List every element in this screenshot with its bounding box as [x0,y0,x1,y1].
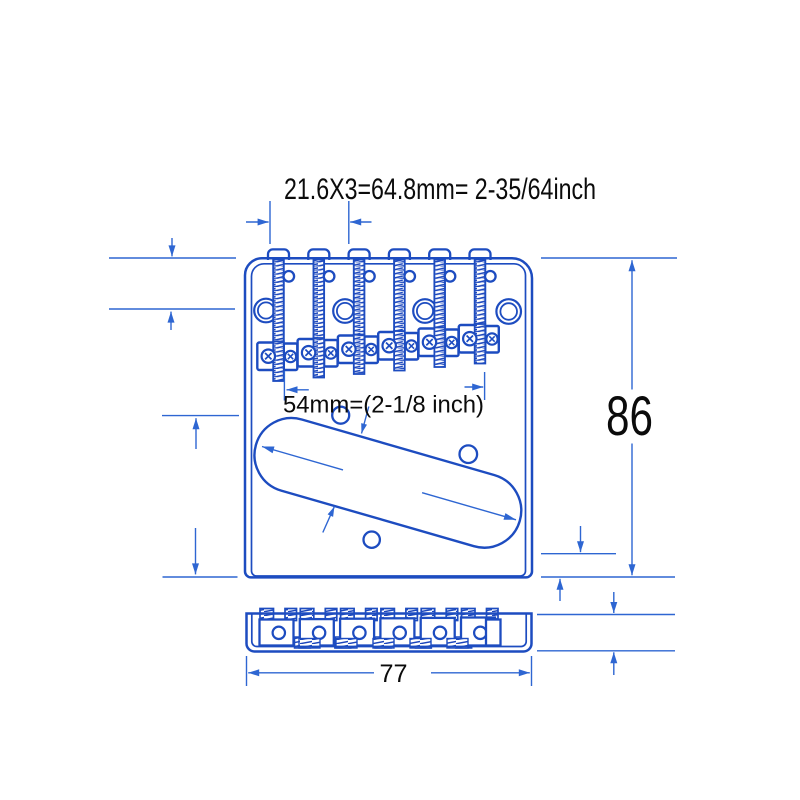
svg-text:86: 86 [606,385,653,447]
svg-text:54mm=(2-1/8 inch): 54mm=(2-1/8 inch) [283,392,484,419]
svg-text:21.6X3=64.8mm= 2-35/64inch: 21.6X3=64.8mm= 2-35/64inch [284,173,596,206]
svg-text:77: 77 [380,660,408,688]
